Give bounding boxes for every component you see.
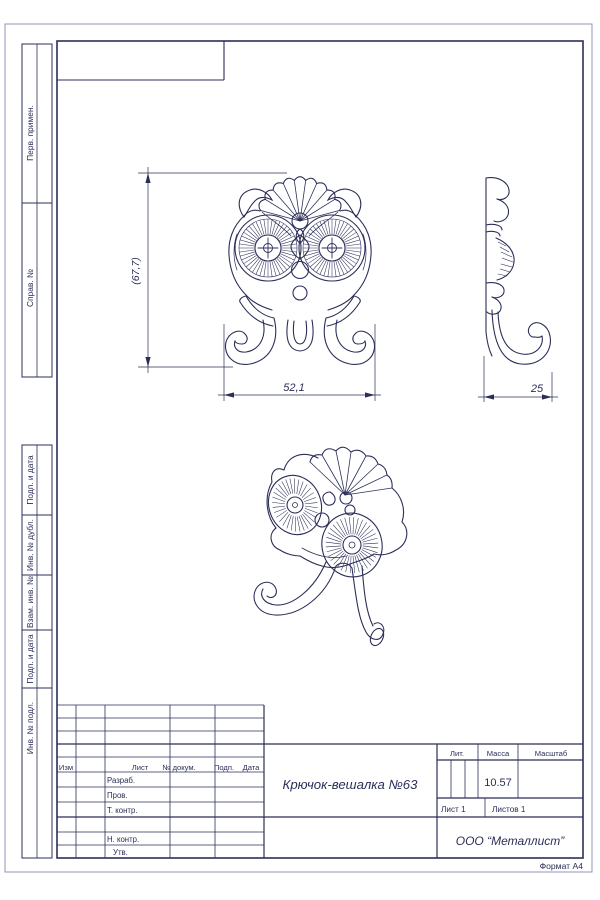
col-izm: Изм	[59, 763, 73, 772]
outer-margin-border	[5, 24, 592, 872]
row-prov: Пров.	[107, 791, 128, 800]
dim-depth-value: 25	[530, 383, 544, 395]
drawing-title: Крючок-вешалка №63	[283, 777, 419, 792]
dim-width-value: 52,1	[283, 382, 304, 394]
iso-left-eye-sunburst	[272, 479, 317, 532]
row-utv: Утв.	[113, 848, 128, 857]
col-ndokum: № докум.	[162, 763, 195, 772]
mass-value: 10.57	[484, 777, 512, 789]
sidebar-label-inv-podl: Инв. № подл.	[25, 702, 35, 754]
center-hook	[287, 320, 313, 351]
front-view	[225, 177, 374, 365]
sidebar-top-box	[22, 44, 52, 377]
side-profile	[486, 178, 514, 315]
sidebar-label-inv-dubl: Инв. № дубл.	[25, 519, 35, 571]
iso-right-eye	[315, 506, 390, 583]
label-masshtab: Масштаб	[535, 749, 568, 758]
row-nkontr: Н. контр.	[107, 835, 139, 844]
drawing-sheet: Перв. примен. Справ. № Подп. и дата Инв.…	[0, 0, 600, 900]
row-razrab: Разраб.	[107, 776, 135, 785]
row-tkontr: Т. контр.	[107, 806, 137, 815]
right-ear	[328, 189, 361, 217]
col-data: Дата	[243, 763, 261, 772]
sidebar-labels: Перв. примен. Справ. № Подп. и дата Инв.…	[25, 105, 35, 754]
title-block-texts: Изм Лист № докум. Подп. Дата Разраб. Про…	[59, 749, 583, 871]
dim-depth	[478, 356, 558, 402]
top-left-cell	[57, 41, 224, 80]
format-label: Формат А4	[540, 861, 584, 871]
sheet-number: Лист 1	[441, 805, 466, 814]
nose-ornaments	[291, 235, 309, 300]
isometric-view	[254, 447, 407, 647]
sidebar-label-podp-data-2: Подп. и дата	[25, 634, 35, 684]
col-podp: Подп.	[214, 763, 234, 772]
side-hook	[492, 310, 550, 364]
left-ear	[239, 189, 272, 217]
revision-table	[57, 705, 264, 845]
sidebar-label-vzam-inv: Взам. инв. №	[25, 576, 35, 628]
iso-crest-fan	[310, 447, 392, 515]
iso-left-hook	[254, 562, 336, 615]
company-name: ООО “Металлист”	[456, 834, 565, 848]
side-view	[486, 178, 550, 365]
iso-right-eye-sunburst	[326, 517, 378, 573]
label-lit: Лит.	[450, 749, 464, 758]
dim-height-value: (67,7)	[130, 257, 142, 284]
iso-left-eye	[260, 468, 329, 542]
col-list: Лист	[132, 763, 149, 772]
crest-fan	[259, 177, 341, 243]
sidebar-label-sprav-no: Справ. №	[25, 269, 35, 307]
sheets-total: Листов 1	[492, 805, 526, 814]
sheet-frame	[5, 24, 592, 872]
left-eye-screw	[255, 235, 281, 261]
inner-frame-border	[57, 41, 583, 858]
dimensions	[138, 167, 558, 402]
right-eye-screw	[319, 235, 345, 261]
label-massa: Масса	[487, 749, 510, 758]
dimension-texts: (67,7) 52,1 25	[130, 257, 544, 395]
sidebar-label-perv-primen: Перв. примен.	[25, 105, 35, 161]
sidebar-label-podp-data-1: Подп. и дата	[25, 455, 35, 505]
